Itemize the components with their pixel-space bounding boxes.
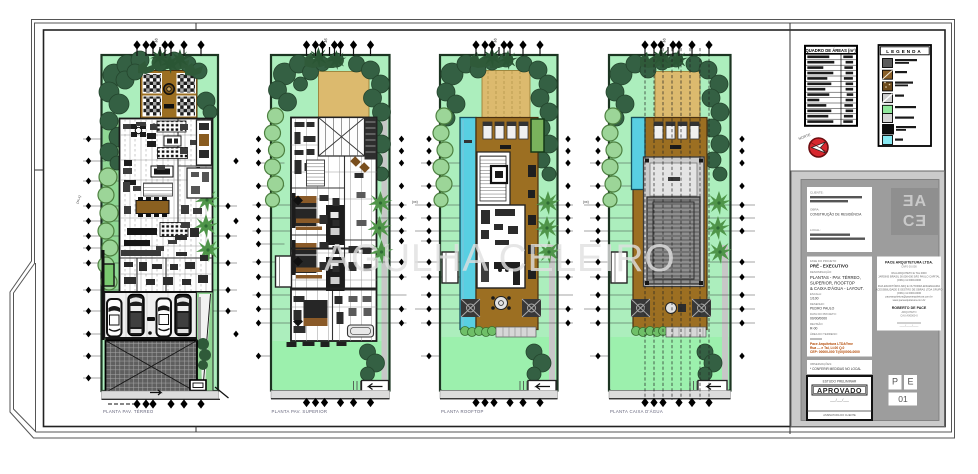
svg-text:PLANTA ROOFTOP: PLANTA ROOFTOP — [441, 409, 484, 414]
svg-text:SUPERIOR, ROOFTOP: SUPERIOR, ROOFTOP — [810, 281, 855, 286]
svg-text:___/___/___: ___/___/___ — [829, 398, 849, 402]
svg-text:PLANTA CAIXA D'ÁGUA: PLANTA CAIXA D'ÁGUA — [610, 409, 663, 414]
svg-text:(xx): (xx) — [412, 200, 418, 204]
svg-text:ROBERTO DE PACE: ROBERTO DE PACE — [892, 306, 927, 310]
svg-text:DENOMINAÇÃO:: DENOMINAÇÃO: — [810, 269, 832, 274]
svg-text:* CONFERIR MEDIDAS NO LOCAL: * CONFERIR MEDIDAS NO LOCAL — [810, 367, 861, 371]
svg-text:AGULHA CELEIRO: AGULHA CELEIRO — [324, 237, 675, 280]
svg-text:FASE DO PROJETO:: FASE DO PROJETO: — [810, 259, 837, 263]
svg-text:CAU A00000-0: CAU A00000-0 — [900, 314, 918, 318]
svg-text:PLANTAS - PAV. TÉRREO,: PLANTAS - PAV. TÉRREO, — [810, 275, 861, 280]
svg-text:E: E — [907, 377, 913, 387]
svg-text:DESENHO:: DESENHO: — [810, 302, 825, 306]
svg-text:QUADRO DE ÁREAS (m²): QUADRO DE ÁREAS (m²) — [805, 48, 856, 53]
svg-text:PLANTA PAV. SUPERIOR: PLANTA PAV. SUPERIOR — [272, 409, 328, 414]
svg-text:PRÉ - EXECUTIVO: PRÉ - EXECUTIVO — [810, 264, 849, 269]
svg-text:ÁREA DO TERRENO:: ÁREA DO TERRENO: — [810, 332, 838, 336]
svg-text:P: P — [892, 377, 898, 387]
svg-text:____/____/____: ____/____/____ — [899, 324, 919, 328]
svg-text:LOCAL:: LOCAL: — [810, 228, 821, 232]
svg-text:RUA ARQUITETO E TAL 0000: RUA ARQUITETO E TAL 0000 — [891, 271, 927, 275]
svg-text:00/00/0000: 00/00/0000 — [810, 317, 827, 321]
svg-text:ESCALA:: ESCALA: — [810, 292, 822, 296]
svg-text:01: 01 — [898, 394, 908, 404]
svg-text:PEDRO PAULO: PEDRO PAULO — [810, 307, 835, 311]
svg-text:REVISÃO:: REVISÃO: — [810, 321, 823, 326]
svg-text:(ORG) 11 0000-0000: (ORG) 11 0000-0000 — [897, 278, 922, 282]
svg-text:PLANTA PAV. TÉRREO: PLANTA PAV. TÉRREO — [103, 409, 154, 414]
svg-text:PACE ARQUITETURA LTDA.: PACE ARQUITETURA LTDA. — [885, 261, 933, 265]
svg-text:(ORG) 11 0000-0000: (ORG) 11 0000-0000 — [897, 291, 922, 295]
svg-text:CLIENTE:: CLIENTE: — [810, 191, 824, 195]
svg-text:R-00: R-00 — [810, 327, 817, 331]
svg-text:CƎ: CƎ — [903, 213, 927, 230]
svg-text:DATA DO PROJETO:: DATA DO PROJETO: — [810, 312, 837, 316]
svg-text:(xx): (xx) — [583, 200, 589, 204]
svg-text:OBRA:: OBRA: — [810, 208, 820, 212]
svg-text:CNPJ 00.000: CNPJ 00.000 — [901, 265, 917, 269]
svg-text:LEGENDA: LEGENDA — [886, 49, 922, 54]
svg-text:CONSTRUÇÃO DE RESIDÊNCIA: CONSTRUÇÃO DE RESIDÊNCIA — [810, 212, 862, 217]
svg-text:pacearquitetura@pacearquitetur: pacearquitetura@pacearquitetura.com.br — [885, 295, 932, 299]
svg-text:OBSERVAÇÕES:: OBSERVAÇÕES: — [810, 361, 832, 366]
svg-text:ARQUITETO: ARQUITETO — [901, 310, 916, 314]
svg-text:ASSINATURA DO CLIENTE: ASSINATURA DO CLIENTE — [823, 413, 856, 417]
svg-text:& CAIXA D'ÁGUA - LAYOUT.: & CAIXA D'ÁGUA - LAYOUT. — [810, 286, 864, 291]
svg-text:ESTUDO PRELIMINAR: ESTUDO PRELIMINAR — [823, 380, 857, 384]
svg-text:www.pacearquitetura.com.br: www.pacearquitetura.com.br — [893, 298, 926, 302]
svg-text:ƎA: ƎA — [903, 193, 927, 210]
svg-text:APROVADO: APROVADO — [817, 386, 862, 395]
svg-text:CEP: 00000-000 T:(00)0000-0000: CEP: 00000-000 T:(00)0000-0000 — [810, 350, 860, 354]
svg-text:1/100: 1/100 — [810, 297, 819, 301]
